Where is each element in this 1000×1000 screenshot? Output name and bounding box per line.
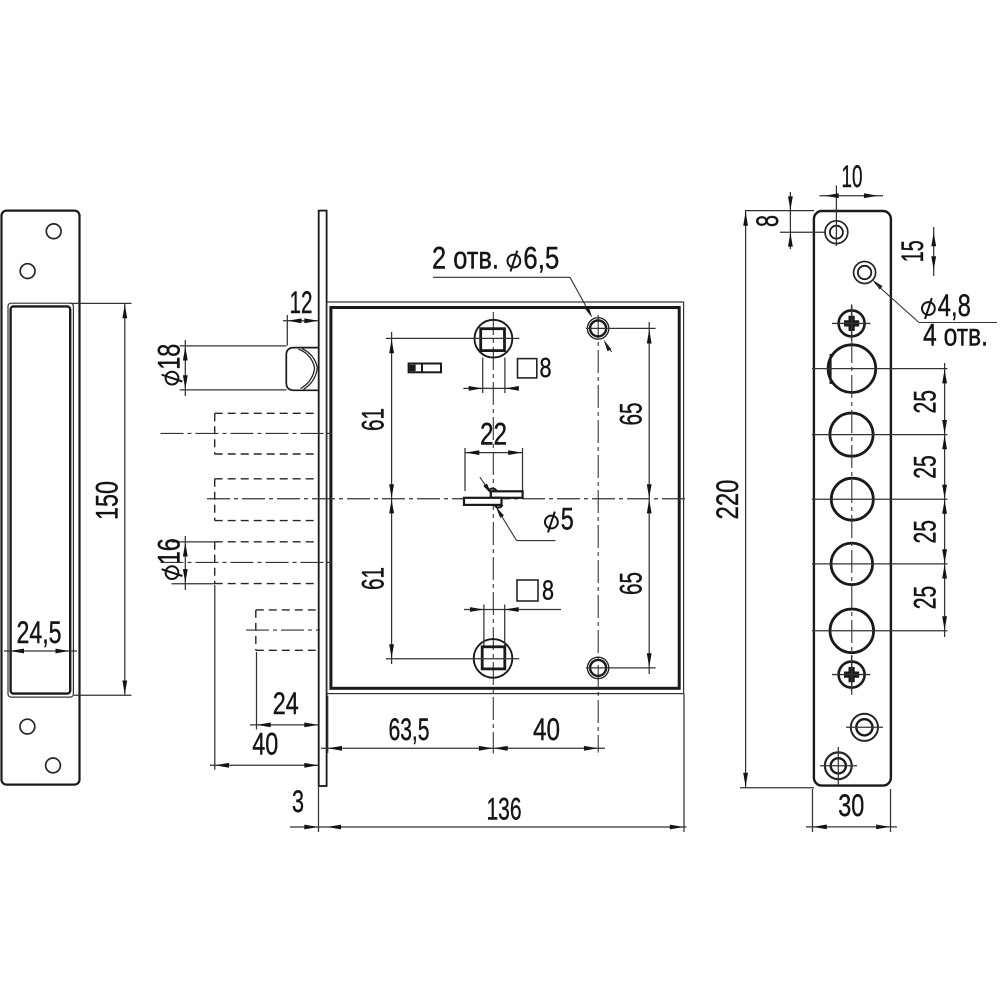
svg-text:25: 25 (907, 455, 943, 479)
svg-text:8: 8 (749, 215, 785, 227)
svg-text:25: 25 (907, 390, 943, 414)
svg-text:24,5: 24,5 (17, 614, 62, 650)
svg-text:61: 61 (355, 567, 391, 590)
svg-text:6,5: 6,5 (523, 240, 559, 276)
svg-text:150: 150 (89, 481, 125, 520)
svg-text:5: 5 (561, 501, 574, 537)
svg-text:136: 136 (487, 791, 522, 827)
svg-text:15: 15 (894, 240, 930, 262)
svg-text:22: 22 (480, 416, 507, 452)
svg-text:63,5: 63,5 (389, 711, 430, 747)
svg-text:61: 61 (355, 408, 391, 431)
svg-text:10: 10 (842, 158, 863, 194)
svg-text:18: 18 (151, 344, 187, 370)
svg-text:25: 25 (907, 586, 943, 610)
svg-text:40: 40 (533, 711, 560, 747)
svg-text:8: 8 (540, 352, 552, 383)
svg-text:16: 16 (151, 538, 187, 564)
svg-text:3: 3 (292, 783, 304, 819)
svg-text:40: 40 (252, 726, 278, 762)
svg-text:4 отв.: 4 отв. (923, 317, 988, 353)
svg-text:25: 25 (907, 520, 943, 544)
svg-text:30: 30 (838, 787, 864, 823)
svg-text:220: 220 (709, 480, 745, 520)
svg-text:65: 65 (613, 403, 649, 426)
svg-text:2 отв.: 2 отв. (432, 240, 499, 276)
svg-text:65: 65 (613, 572, 649, 595)
svg-text:8: 8 (542, 575, 554, 606)
svg-text:24: 24 (273, 685, 299, 721)
svg-text:12: 12 (290, 284, 313, 320)
